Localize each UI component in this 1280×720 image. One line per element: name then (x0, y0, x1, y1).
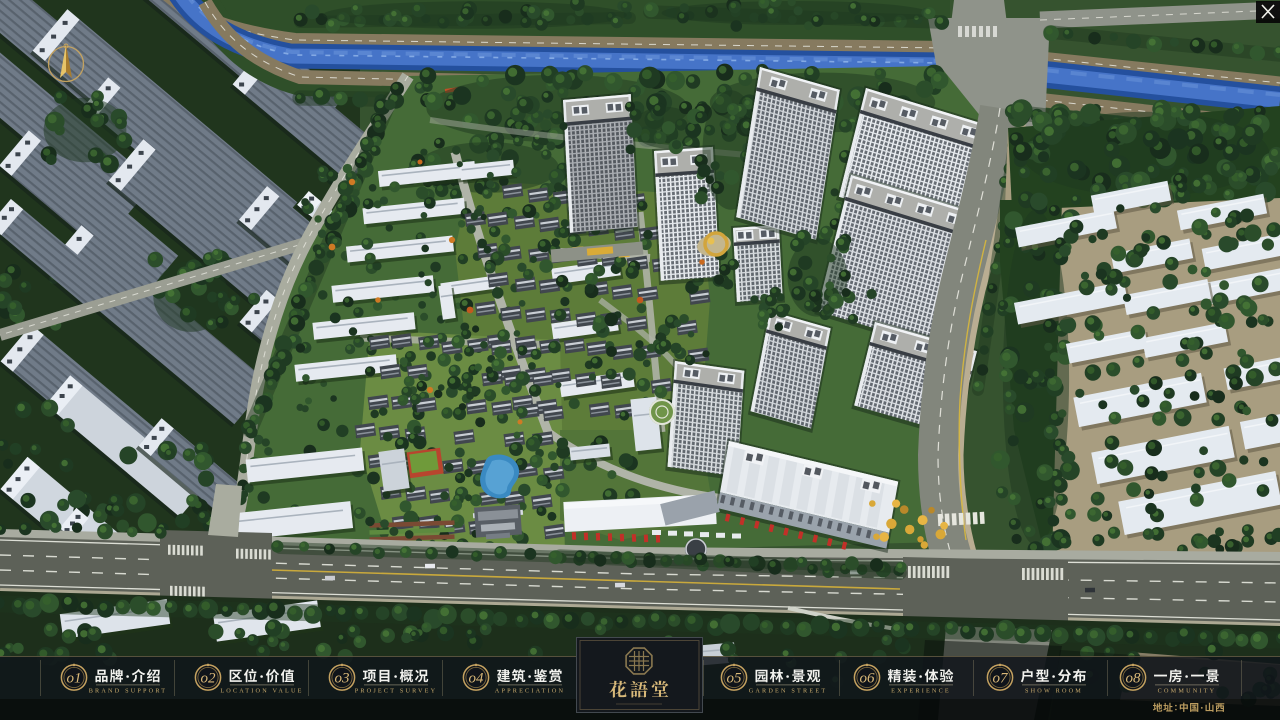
svg-text:COMMUNITY: COMMUNITY (1158, 688, 1217, 695)
svg-text:o5: o5 (727, 671, 743, 687)
svg-text:o6: o6 (860, 671, 876, 687)
svg-text:PROJECT SURVEY: PROJECT SURVEY (355, 688, 438, 695)
svg-text:o2: o2 (201, 671, 217, 687)
svg-text:o1: o1 (67, 671, 82, 687)
svg-text:o7: o7 (993, 671, 1010, 687)
svg-text:GARDEN STREET: GARDEN STREET (749, 688, 828, 695)
svg-text:EXPERIENCE: EXPERIENCE (891, 688, 951, 695)
svg-text:o4: o4 (469, 671, 485, 687)
svg-text:LOCATION VALUE: LOCATION VALUE (220, 688, 303, 695)
svg-text:o3: o3 (335, 671, 350, 687)
svg-text:SHOW ROOM: SHOW ROOM (1025, 688, 1083, 695)
svg-text:APPRECIATION: APPRECIATION (495, 688, 565, 695)
svg-text:BRAND SUPPORT: BRAND SUPPORT (89, 688, 168, 695)
svg-text:o8: o8 (1126, 671, 1142, 687)
